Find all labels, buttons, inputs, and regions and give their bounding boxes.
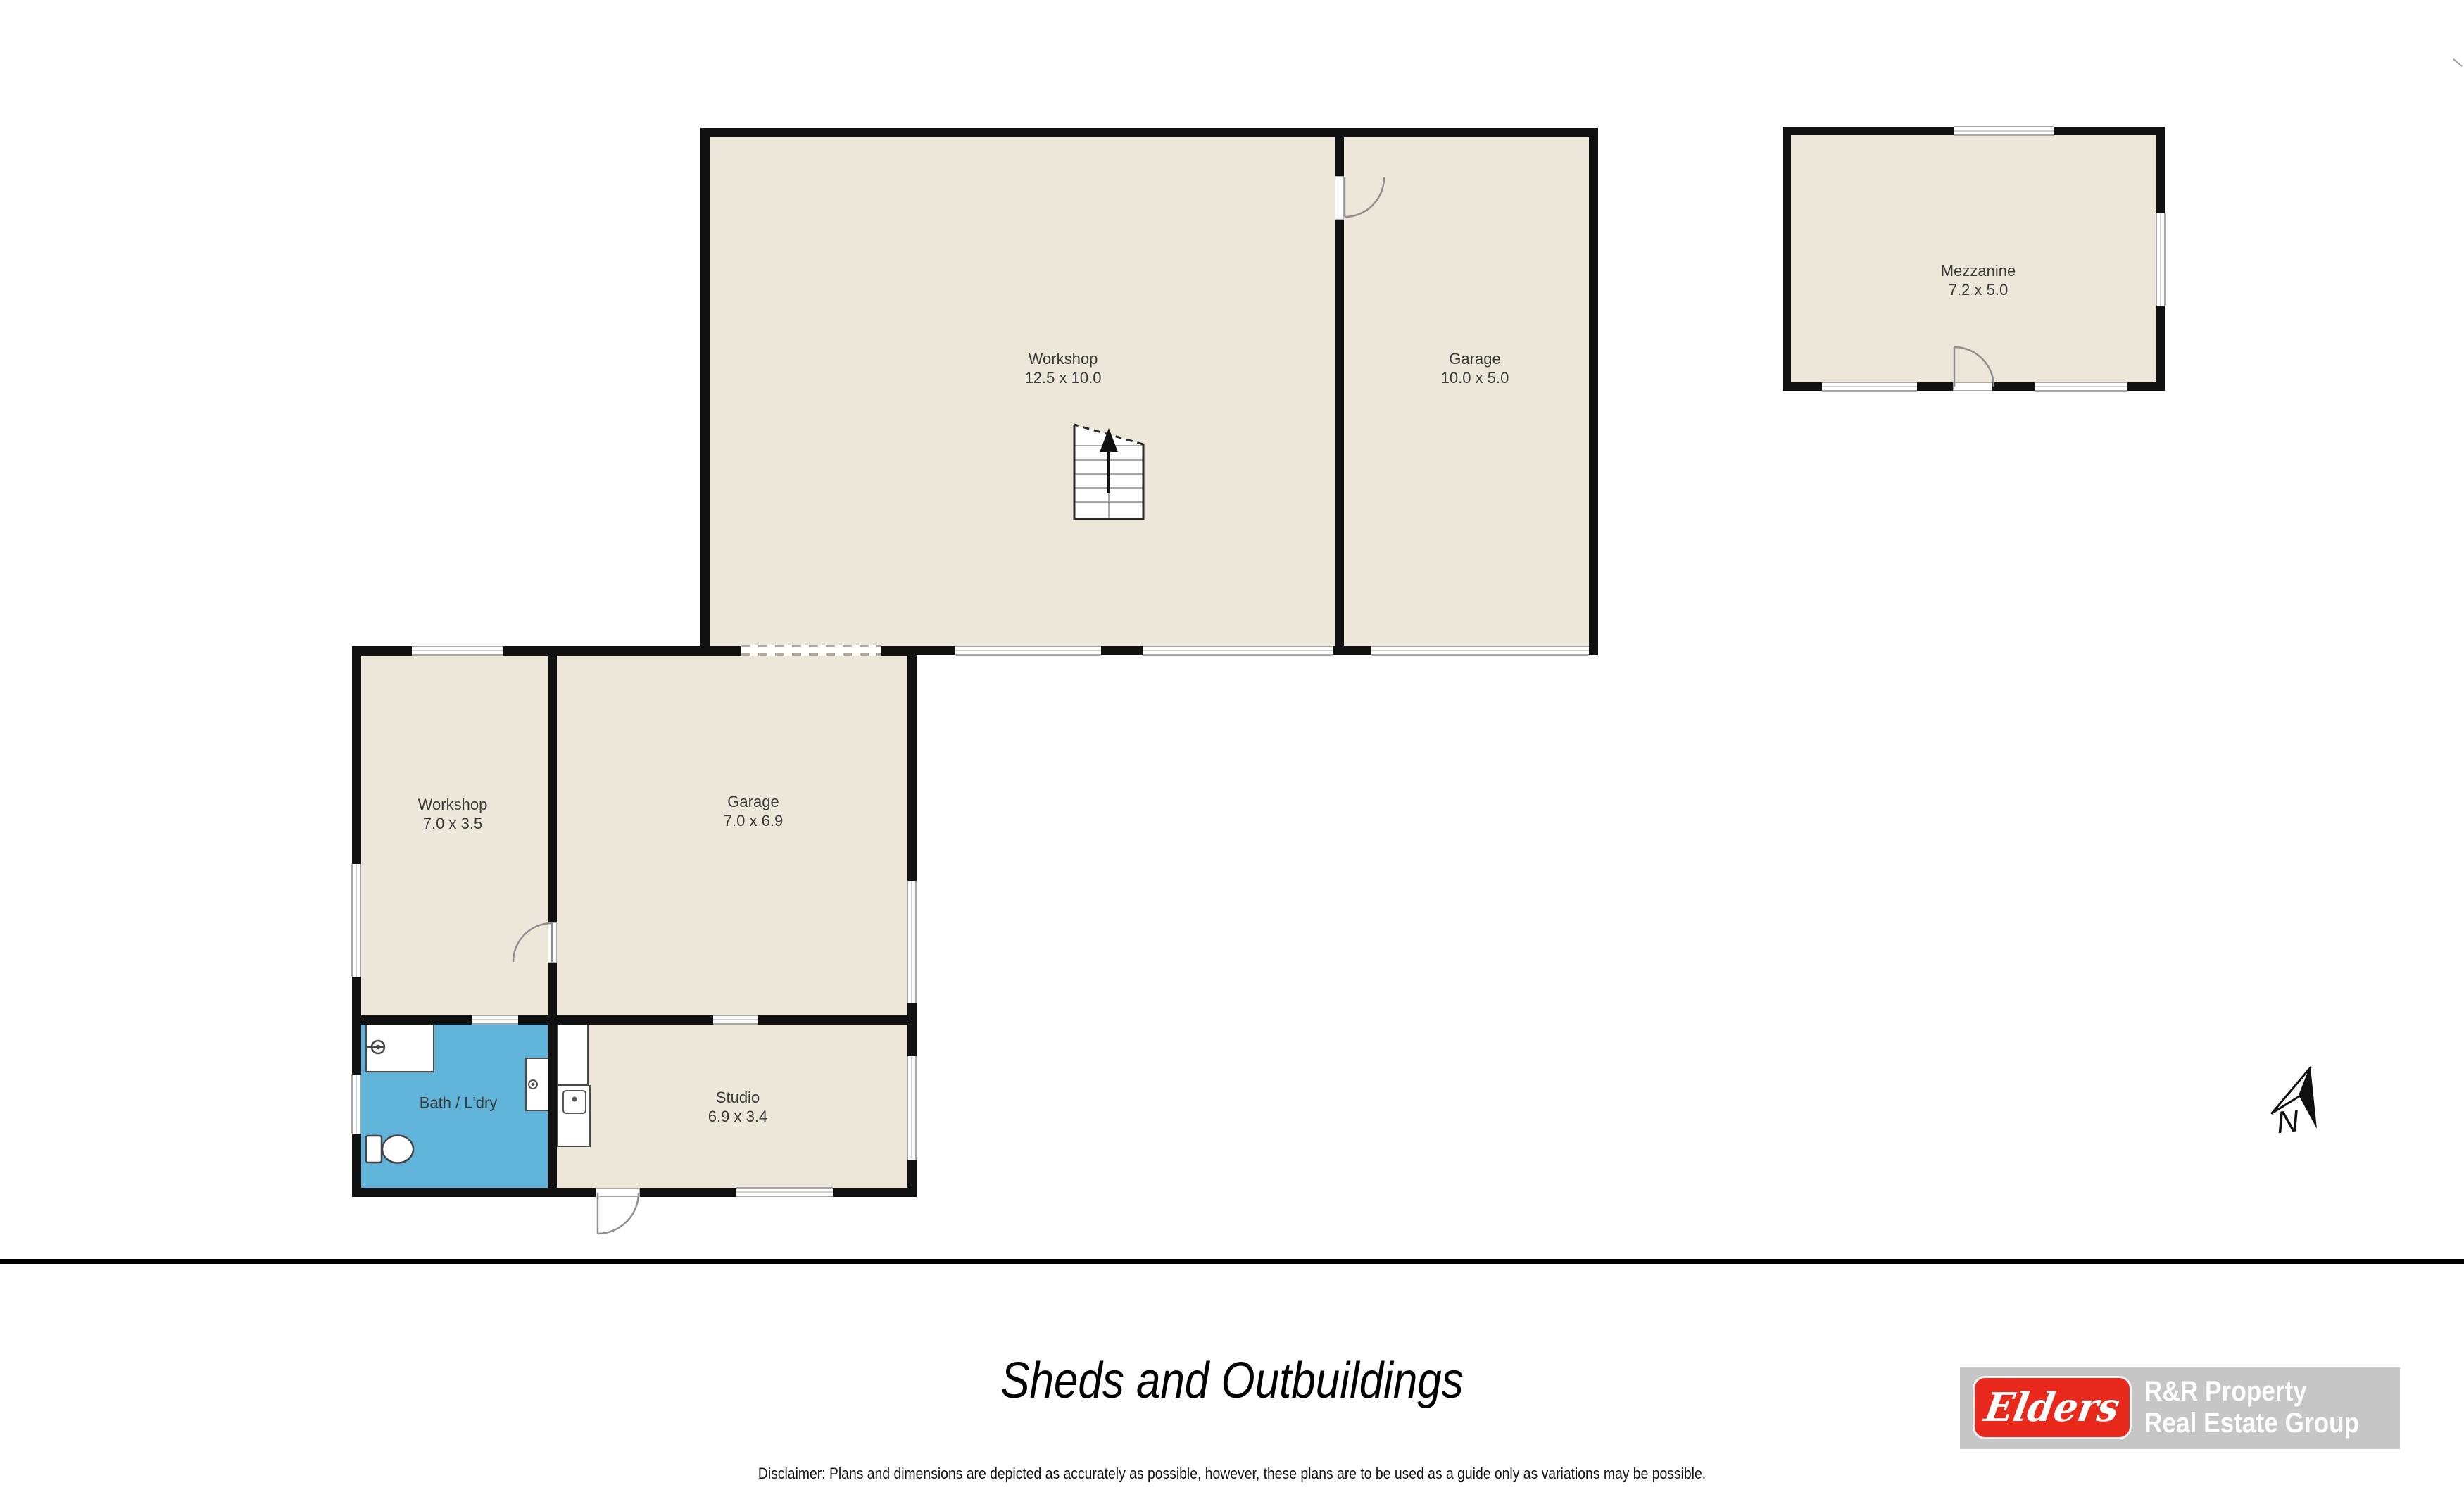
workshop-door-gap (548, 922, 557, 963)
room-dims: 12.5 x 10.0 (1025, 368, 1102, 387)
room-dims: 7.2 x 5.0 (1941, 280, 2016, 299)
studio-bench-top (557, 1022, 589, 1085)
elders-logo-box: Elders (1973, 1376, 2132, 1439)
room-name: Workshop (1025, 349, 1102, 368)
north-label: N (2275, 1103, 2301, 1140)
room-dims: 7.0 x 3.5 (418, 814, 488, 833)
bath-window-top (472, 1015, 518, 1025)
main-shed-wall-top (700, 128, 1598, 137)
room-name: Garage (1441, 349, 1509, 368)
bath-window-left (351, 1075, 361, 1134)
main-shed-floor (710, 137, 1589, 646)
shower-unit (365, 1022, 434, 1072)
disclaimer-text: Disclaimer: Plans and dimensions are dep… (758, 1465, 1706, 1483)
room-dims: 6.9 x 3.4 (708, 1107, 767, 1126)
room-name: Workshop (418, 795, 488, 814)
room-label-workshop-main: Workshop 12.5 x 10.0 (1025, 349, 1102, 387)
mezzanine-door-gap (1953, 382, 1992, 391)
room-name: Bath / L'dry (420, 1094, 498, 1113)
studio-door-arc (598, 1193, 639, 1234)
room-dims: 7.0 x 6.9 (724, 811, 783, 830)
lower-shed-mid-wall (352, 1015, 917, 1025)
room-name: Studio (708, 1088, 767, 1107)
agency-name: R&R Property Real Estate Group (2144, 1376, 2359, 1439)
mezzanine-window-bottom-left (1822, 382, 1917, 392)
agency-logo: Elders R&R Property Real Estate Group (1960, 1367, 2400, 1449)
main-shed-roller-door-2 (1143, 646, 1333, 656)
lower-shed-divider-wall (548, 646, 557, 1197)
studio-window-top (713, 1015, 758, 1025)
studio-door-gap (596, 1188, 640, 1197)
mezzanine-window-top (1954, 126, 2054, 136)
studio-window-right (907, 1056, 917, 1160)
north-arrow: N (2272, 1067, 2317, 1140)
garage-small-window-right (907, 881, 917, 1003)
studio-window-bottom (736, 1187, 833, 1197)
room-label-garage-main: Garage 10.0 x 5.0 (1441, 349, 1509, 387)
studio-bench-bottom (557, 1085, 591, 1147)
room-name: Mezzanine (1941, 261, 2016, 280)
mezzanine-window-right (2156, 213, 2166, 306)
roller-opening-dashed (741, 645, 881, 656)
room-name: Garage (724, 792, 783, 811)
main-shed-roller-door-1 (955, 646, 1101, 656)
elders-logo-script: Elders (1982, 1388, 2123, 1427)
room-label-garage-small: Garage 7.0 x 6.9 (724, 792, 783, 830)
workshop-small-window-top (412, 646, 503, 656)
stray-mark (2453, 58, 2463, 67)
room-dims: 10.0 x 5.0 (1441, 368, 1509, 387)
mezzanine-floor (1791, 135, 2156, 382)
room-label-mezzanine: Mezzanine 7.2 x 5.0 (1941, 261, 2016, 299)
mezzanine-window-bottom-right (2035, 382, 2127, 392)
main-divider-door-gap (1335, 176, 1344, 220)
agency-name-line2: Real Estate Group (2144, 1408, 2359, 1439)
main-shed-roller-door-3 (1371, 646, 1589, 656)
main-shed-wall-right (1589, 128, 1598, 655)
workshop-small-window-left (351, 864, 361, 977)
room-label-studio: Studio 6.9 x 3.4 (708, 1088, 767, 1126)
mezzanine-wall-left (1783, 127, 1791, 391)
floorplan-canvas: N Workshop 12.5 x 10.0 Garage 10.0 x 5.0… (0, 0, 2464, 1497)
main-shed-wall-left (700, 128, 710, 655)
agency-name-line1: R&R Property (2144, 1376, 2359, 1408)
room-label-workshop-small: Workshop 7.0 x 3.5 (418, 795, 488, 833)
room-label-bath-laundry: Bath / L'dry (420, 1094, 498, 1113)
footer-divider-line (0, 1259, 2464, 1264)
page-title: Sheds and Outbuildings (1000, 1353, 1464, 1408)
